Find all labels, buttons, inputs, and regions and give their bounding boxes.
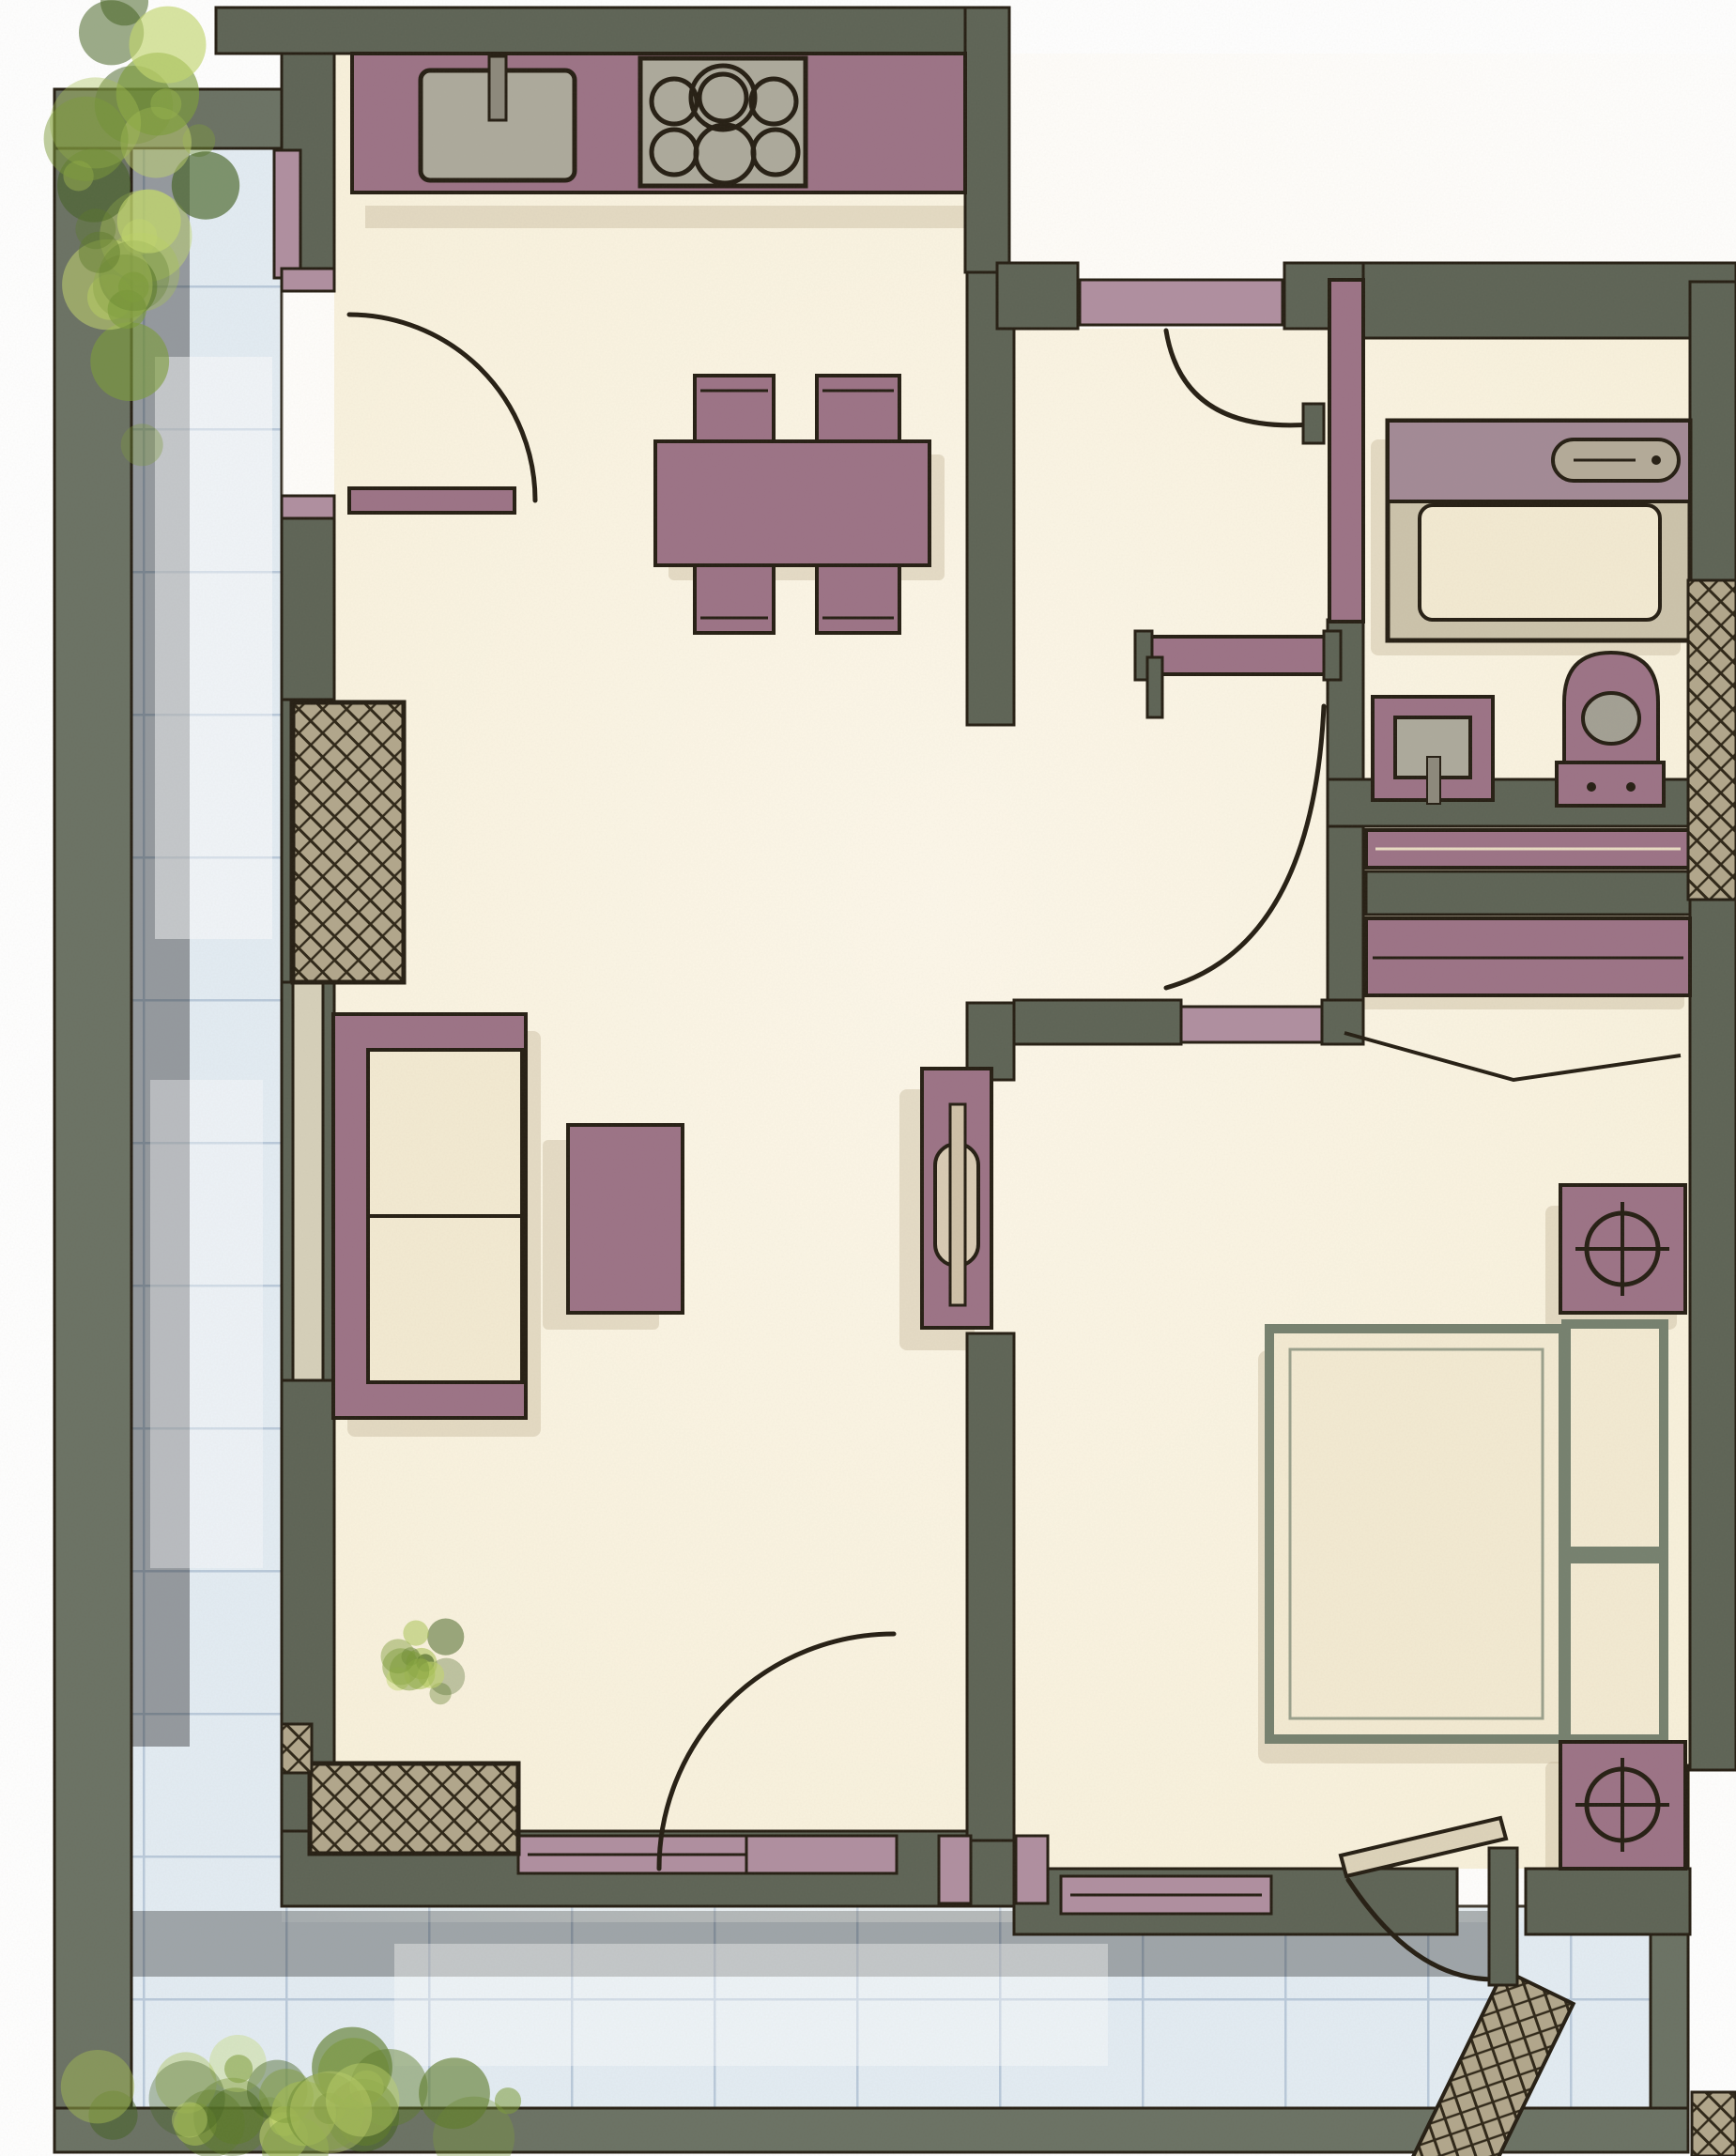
paper-grain <box>0 0 1736 2156</box>
floor-plan-drawing <box>0 0 1736 2156</box>
floor-plan-page <box>0 0 1736 2156</box>
